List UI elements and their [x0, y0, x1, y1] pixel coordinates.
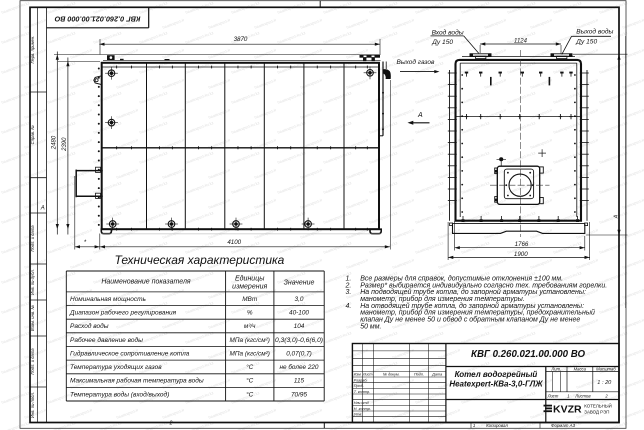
svg-text:Листов: Листов [574, 394, 591, 399]
svg-text:3870: 3870 [234, 36, 248, 43]
svg-text:А: А [40, 206, 45, 212]
svg-text:Подп. и дата: Подп. и дата [30, 348, 35, 375]
svg-text:Лист: Лист [547, 394, 559, 399]
svg-text:Вход воды: Вход воды [432, 28, 464, 36]
svg-text:70/95: 70/95 [291, 391, 307, 398]
svg-text:Перв. примен.: Перв. примен. [30, 36, 35, 64]
svg-text:Максимальная рабочая температу: Максимальная рабочая температура воды [70, 377, 204, 385]
svg-text:МПа (кгс/см²): МПа (кгс/см²) [230, 350, 270, 357]
svg-text:Масса: Масса [574, 367, 587, 372]
svg-text:4.: 4. [346, 303, 352, 310]
svg-text:Инв. № дубл.: Инв. № дубл. [30, 269, 35, 295]
svg-text:°С: °С [246, 390, 254, 398]
svg-text:3,0: 3,0 [295, 296, 304, 303]
svg-text:Все размеры для справок, допус: Все размеры для справок, допустимые откл… [360, 274, 563, 282]
svg-text:115: 115 [294, 378, 305, 385]
svg-text:Лит.: Лит. [550, 367, 561, 372]
svg-text:МПа (кгс/см²): МПа (кгс/см²) [230, 337, 270, 344]
svg-text:МВт: МВт [242, 296, 258, 303]
svg-text:3.: 3. [346, 289, 352, 296]
svg-text:Подп.: Подп. [414, 373, 424, 377]
svg-text:Н. контр.: Н. контр. [354, 407, 371, 411]
svg-text:Утв.: Утв. [354, 412, 363, 416]
svg-text:Выход газов: Выход газов [397, 58, 435, 66]
svg-text:Выход воды: Выход воды [576, 28, 613, 36]
svg-text:Расход воды: Расход воды [70, 322, 109, 330]
svg-text:А: А [614, 214, 620, 219]
svg-text:Heatexpert-КВа-3,0-ГЛЖ: Heatexpert-КВа-3,0-ГЛЖ [449, 380, 543, 389]
svg-text:Ду 150: Ду 150 [575, 38, 597, 45]
svg-text:Диапазон рабочего регулировани: Диапазон рабочего регулирования [69, 308, 177, 316]
svg-text:м³/ч: м³/ч [244, 323, 256, 330]
svg-text:ЗАВОД РЭП: ЗАВОД РЭП [584, 409, 609, 414]
svg-text:Ду 150: Ду 150 [431, 39, 453, 46]
svg-text:2390: 2390 [62, 137, 68, 152]
svg-text:50 мм.: 50 мм. [360, 323, 381, 330]
svg-text:Справ. №: Справ. № [30, 125, 35, 144]
svg-text:КВГ 0.260.021.00.000 ВО: КВГ 0.260.021.00.000 ВО [54, 14, 140, 23]
svg-text:Температура уходящих газов: Температура уходящих газов [70, 363, 162, 371]
svg-text:Разраб.: Разраб. [354, 378, 368, 382]
svg-text:Изм: Изм [354, 373, 361, 377]
svg-text:Значение: Значение [284, 280, 315, 287]
svg-text:1: 1 [567, 394, 569, 399]
svg-text:Наименование показателя: Наименование показателя [101, 279, 191, 286]
svg-text:Формат А3: Формат А3 [551, 423, 576, 428]
svg-text:Размер* выбирается индивидуаль: Размер* выбирается индивидуально согласн… [360, 281, 607, 289]
svg-text:клапан Ду не менее 50 и обвод: клапан Ду не менее 50 и обвод с обратным… [360, 316, 580, 324]
svg-text:На подводящей трубе котла, до: На подводящей трубе котла, до запорной а… [360, 288, 586, 296]
svg-text:Т. контр.: Т. контр. [354, 390, 370, 394]
svg-text:Взам. инв. №: Взам. инв. № [30, 305, 35, 331]
svg-text:КВГ 0.260.021.00.000 ВО: КВГ 0.260.021.00.000 ВО [471, 349, 585, 360]
svg-text:Котел водогрейный: Котел водогрейный [455, 370, 538, 379]
svg-text:1124: 1124 [514, 38, 528, 44]
svg-text:Техническая характеристика: Техническая характеристика [114, 253, 284, 267]
svg-text:4100: 4100 [227, 239, 241, 246]
svg-text:манометр, прибор для измерения: манометр, прибор для измерения температу… [360, 309, 595, 317]
svg-text:%: % [247, 309, 253, 316]
svg-text:KVZR: KVZR [553, 404, 582, 416]
svg-text:не более 220: не более 220 [279, 363, 318, 371]
svg-text:Масштаб: Масштаб [596, 367, 616, 372]
svg-text:Лист: Лист [362, 373, 373, 377]
svg-text:Проб.: Проб. [354, 384, 364, 388]
svg-text:0,3(3,0)-0,6(6,0): 0,3(3,0)-0,6(6,0) [275, 337, 323, 344]
svg-text:Рабочее давление воды: Рабочее давление воды [70, 336, 143, 344]
svg-text:1900: 1900 [514, 251, 528, 258]
svg-text:2: 2 [169, 420, 173, 426]
svg-text:Дата: Дата [431, 373, 442, 377]
svg-text:Температура воды (вход/выход): Температура воды (вход/выход) [70, 390, 169, 398]
svg-text:°С: °С [246, 377, 254, 385]
svg-text:На отводящей трубе котла, до з: На отводящей трубе котла, до запорной ар… [360, 302, 584, 310]
svg-text:А: А [417, 112, 423, 119]
svg-text:Подп. и дата: Подп. и дата [30, 225, 35, 252]
svg-text:Гидравлическое сопротивление к: Гидравлическое сопротивление котла [70, 349, 190, 357]
svg-text:104: 104 [294, 323, 305, 330]
svg-text:Копировал: Копировал [486, 423, 508, 428]
svg-text:1766: 1766 [515, 241, 529, 248]
svg-text:°С: °С [246, 363, 254, 371]
svg-text:Нач.отд: Нач.отд [354, 401, 369, 405]
svg-text:40-100: 40-100 [289, 309, 309, 316]
svg-text:2480: 2480 [52, 135, 58, 150]
svg-text:КОТЕЛЬНЫЙ: КОТЕЛЬНЫЙ [584, 404, 612, 409]
svg-text:Инв. № подл.: Инв. № подл. [30, 392, 35, 418]
svg-text:Единицы: Единицы [235, 275, 265, 283]
svg-text:измерения: измерения [232, 284, 267, 291]
svg-text:Номинальная мощность: Номинальная мощность [70, 296, 147, 303]
svg-text:манометр, прибор для измерения: манометр, прибор для измерения температу… [360, 295, 525, 303]
svg-text:1 : 20: 1 : 20 [597, 380, 612, 386]
svg-text:№ докум.: № докум. [383, 373, 400, 377]
svg-text:0,07(0,7): 0,07(0,7) [286, 350, 312, 357]
